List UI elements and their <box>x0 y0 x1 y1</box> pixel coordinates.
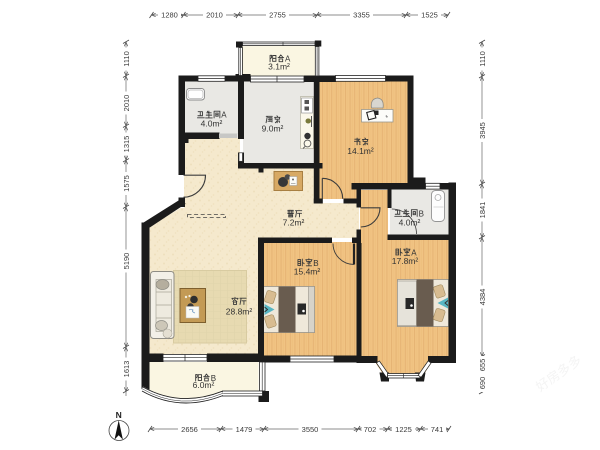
svg-text:2010: 2010 <box>122 95 131 112</box>
svg-text:9.0m²: 9.0m² <box>262 124 284 134</box>
svg-text:15.4m²: 15.4m² <box>294 267 321 277</box>
svg-text:4384: 4384 <box>478 289 487 306</box>
svg-text:4.0m²: 4.0m² <box>399 218 421 228</box>
svg-text:2656: 2656 <box>181 425 198 434</box>
svg-text:28.8m²: 28.8m² <box>226 307 253 317</box>
svg-text:4.0m²: 4.0m² <box>201 119 223 129</box>
svg-text:N: N <box>116 410 122 420</box>
svg-text:3.1m²: 3.1m² <box>268 62 290 72</box>
svg-text:690: 690 <box>478 377 487 390</box>
svg-text:6.0m²: 6.0m² <box>193 380 215 390</box>
svg-text:741: 741 <box>431 425 444 434</box>
svg-text:3550: 3550 <box>302 425 319 434</box>
svg-text:1110: 1110 <box>478 51 487 67</box>
svg-text:17.8m²: 17.8m² <box>392 256 419 266</box>
svg-text:1315: 1315 <box>122 136 131 153</box>
svg-text:1110: 1110 <box>122 51 131 67</box>
svg-text:1841: 1841 <box>478 202 487 219</box>
svg-text:3945: 3945 <box>478 122 487 139</box>
svg-text:1613: 1613 <box>122 361 131 378</box>
svg-text:2010: 2010 <box>206 11 223 20</box>
svg-text:1479: 1479 <box>236 425 253 434</box>
svg-text:702: 702 <box>364 425 377 434</box>
svg-text:1575: 1575 <box>122 175 131 192</box>
svg-text:3355: 3355 <box>353 11 370 20</box>
svg-text:7.2m²: 7.2m² <box>283 218 305 228</box>
svg-text:1280: 1280 <box>161 11 178 20</box>
svg-text:655: 655 <box>478 359 487 372</box>
svg-text:5190: 5190 <box>122 253 131 270</box>
svg-text:1225: 1225 <box>395 425 412 434</box>
svg-text:2755: 2755 <box>269 11 286 20</box>
svg-text:1525: 1525 <box>421 11 438 20</box>
svg-text:14.1m²: 14.1m² <box>347 146 374 156</box>
